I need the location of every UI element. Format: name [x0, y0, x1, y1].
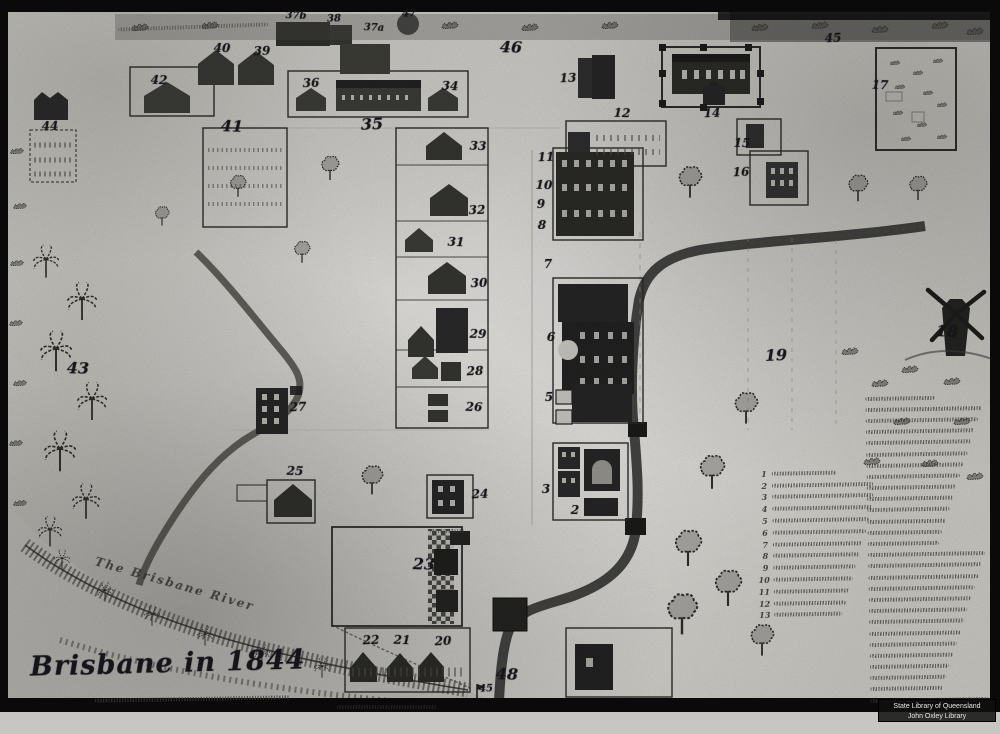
scan-mount-strip: [0, 712, 1000, 734]
watermark-line1: State Library of Queensland: [879, 702, 995, 712]
handwritten-note-attribution: [95, 686, 290, 708]
map-drawing: [0, 0, 1000, 734]
legend-row: 13: [759, 608, 875, 622]
map-photograph: Brisbane in 1844 The Brisbane River 37b3…: [0, 0, 1000, 734]
legend-column-left: 12345678910111213: [757, 466, 876, 621]
handwritten-note-plot: [430, 520, 464, 539]
legend-column-right: [863, 391, 994, 706]
watermark-line2: John Oxley Library: [879, 712, 995, 722]
library-watermark: State Library of Queensland John Oxley L…: [878, 699, 996, 722]
handwritten-note-bottom: [337, 696, 437, 715]
